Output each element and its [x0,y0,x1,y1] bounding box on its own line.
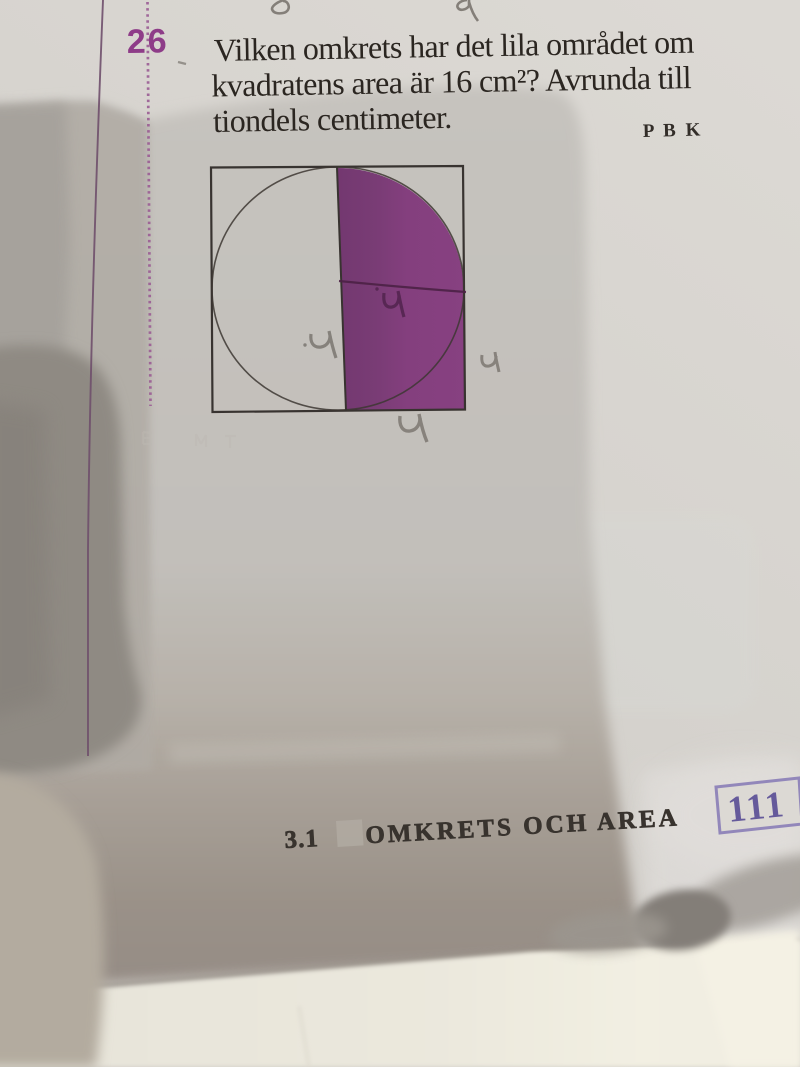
svg-text:111: 111 [726,784,788,831]
svg-text:P B K: P B K [643,119,704,142]
svg-text:26: 26 [126,22,168,61]
svg-text:tiondels centimeter.: tiondels centimeter. [213,99,452,139]
svg-text:3.1: 3.1 [284,825,320,854]
